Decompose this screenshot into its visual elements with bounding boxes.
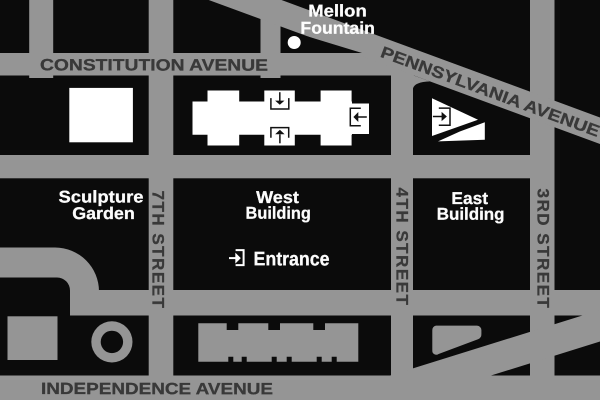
svg-text:3RD STREET: 3RD STREET — [533, 189, 552, 310]
svg-text:4TH STREET: 4TH STREET — [392, 188, 411, 307]
svg-text:Fountain: Fountain — [300, 19, 375, 38]
svg-text:Garden: Garden — [72, 204, 135, 223]
svg-text:INDEPENDENCE AVENUE: INDEPENDENCE AVENUE — [41, 380, 273, 398]
svg-text:Building: Building — [437, 205, 505, 224]
svg-text:7TH STREET: 7TH STREET — [149, 191, 168, 310]
svg-text:Building: Building — [246, 204, 311, 223]
svg-text:CONSTITUTION AVENUE: CONSTITUTION AVENUE — [40, 56, 268, 74]
svg-text:Entrance: Entrance — [253, 248, 329, 270]
